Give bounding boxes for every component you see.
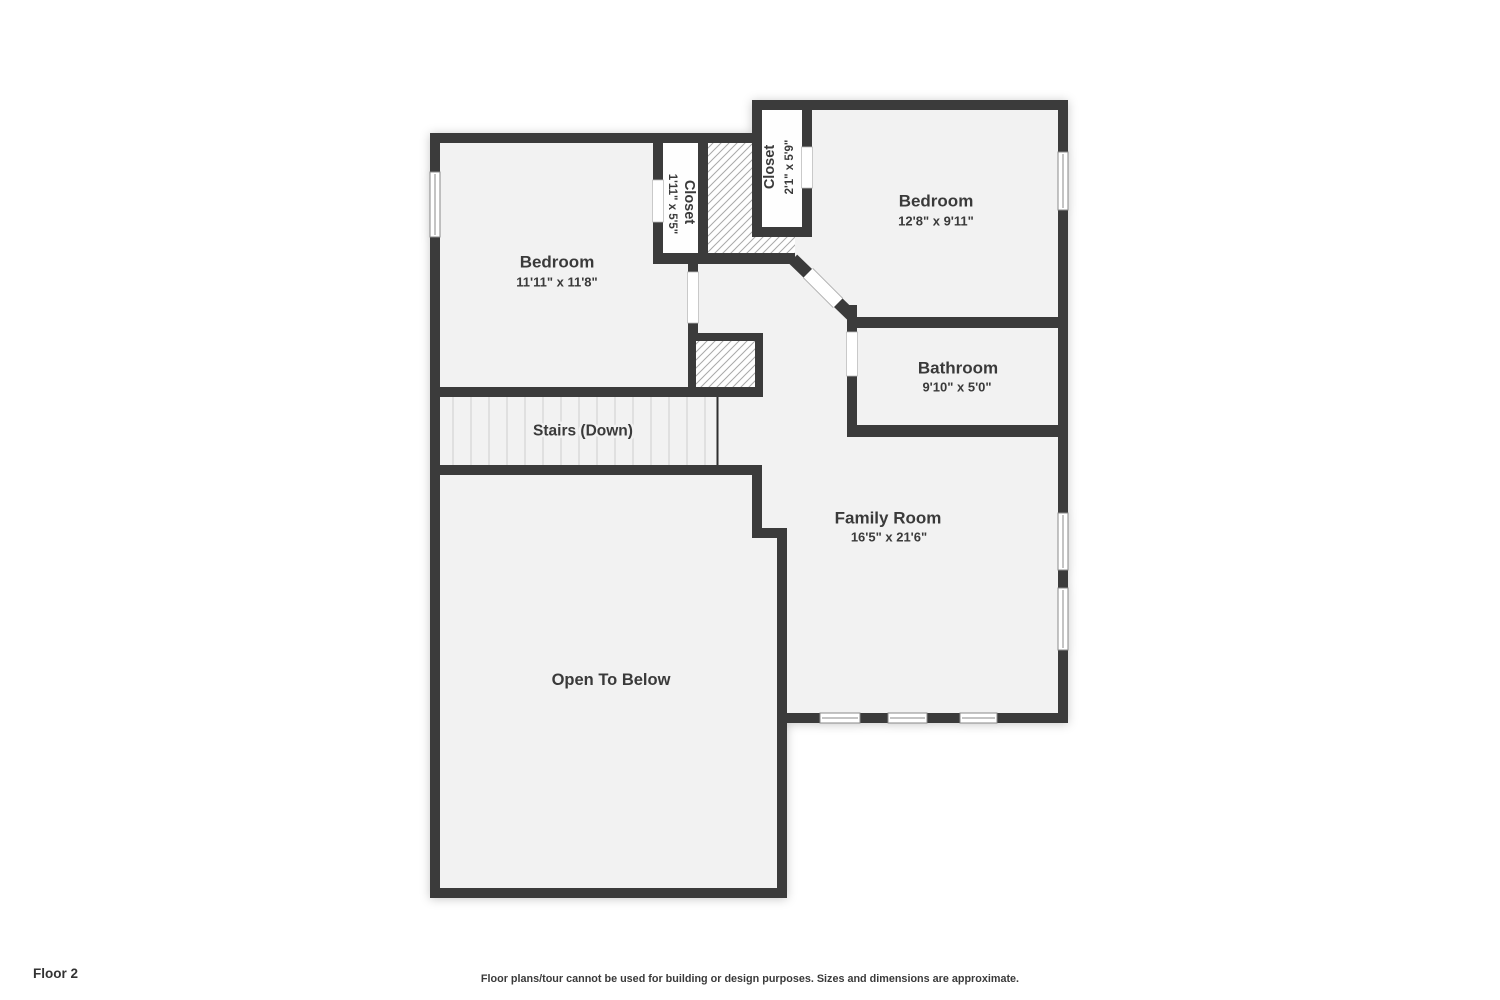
window-bedroom-1-left (430, 172, 440, 237)
window-family-room-right-upper (1058, 513, 1068, 570)
door-bedroom-1 (688, 272, 699, 323)
wall-top-left-section (430, 133, 762, 143)
window-family-room-bottom-2 (888, 713, 927, 723)
bathroom-label: Bathroom (918, 359, 998, 378)
bedroom-2-label: Bedroom (899, 192, 974, 211)
wall-hatched-box-right (755, 341, 763, 397)
wall-left-exterior (430, 133, 440, 898)
floor-plan: Bedroom 11'11" x 11'8" Closet 1'11" x 5'… (0, 0, 1500, 1000)
wall-closet-row-bottom (653, 253, 795, 264)
wall-closet-1-right (698, 133, 708, 263)
wall-open-right-upper (752, 465, 762, 538)
disclaimer-text: Floor plans/tour cannot be used for buil… (0, 973, 1500, 985)
closet-2-dims: 2'1" x 5'9" (784, 140, 796, 195)
wall-hatched-box-left (688, 341, 696, 397)
closet-2-label: Closet (762, 145, 778, 189)
floor-plan-group: Bedroom 11'11" x 11'8" Closet 1'11" x 5'… (430, 100, 1068, 898)
wall-bathroom-bottom (847, 425, 1068, 437)
closet-1-label: Closet (681, 180, 697, 224)
window-family-room-right-lower (1058, 588, 1068, 650)
wall-closet-2-left (752, 100, 762, 237)
window-bedroom-2-right (1058, 152, 1068, 210)
closet-1-dims: 1'11" x 5'5" (666, 174, 678, 235)
family-room-dims: 16'5" x 21'6" (851, 530, 927, 545)
door-closet-1 (653, 180, 664, 222)
bedroom-1-dims: 11'11" x 11'8" (516, 275, 597, 290)
wall-hatched-box-top (688, 333, 763, 341)
stairs-label: Stairs (Down) (533, 423, 633, 440)
wall-stairs-top (430, 387, 763, 397)
wall-top-right-section (752, 100, 1068, 110)
open-to-below-label: Open To Below (552, 671, 671, 689)
family-room-label: Family Room (835, 509, 942, 528)
wall-bottom-exterior (430, 888, 787, 898)
bedroom-1-label: Bedroom (520, 253, 595, 272)
bedroom-2-dims: 12'8" x 9'11" (898, 214, 974, 229)
wall-bedroom-2-bathroom (847, 317, 1068, 328)
door-bathroom (847, 332, 858, 376)
window-family-room-bottom-3 (960, 713, 997, 723)
hatched-box-pattern (696, 341, 755, 390)
door-closet-2 (802, 147, 813, 188)
wall-stairs-bottom (430, 465, 762, 475)
window-family-room-bottom-1 (820, 713, 860, 723)
bathroom-dims: 9'10" x 5'0" (922, 380, 991, 395)
wall-closet-2-bottom (752, 227, 812, 237)
